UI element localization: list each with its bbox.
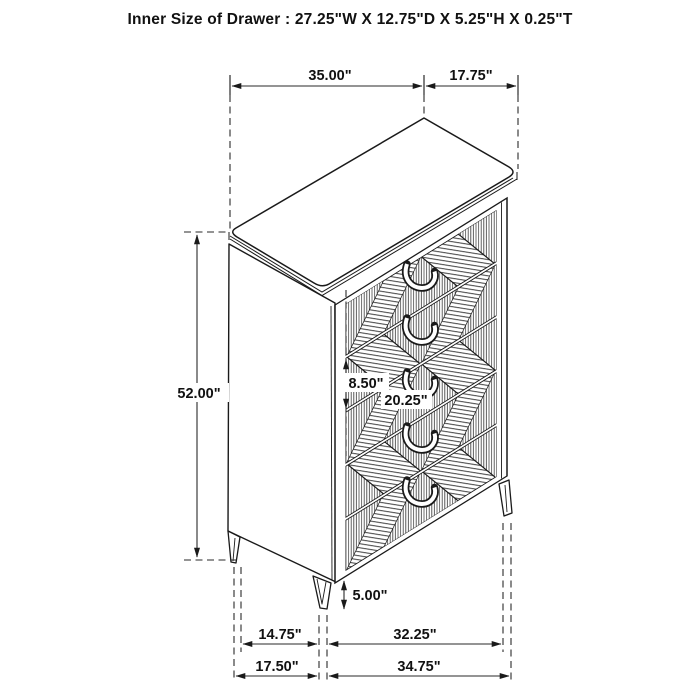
dim-base-width-label: 34.75"	[397, 659, 440, 675]
chest-side-panel	[228, 244, 336, 582]
dim-leg-span-width-label: 32.25"	[393, 627, 436, 643]
dim-drawer-width-label: 20.25"	[384, 393, 427, 409]
dim-overall-height: 52.00"	[170, 232, 236, 560]
chest-dimension-drawing: 35.00" 17.75" 52.00" 8.50" 20.25" 5.00"	[0, 0, 700, 700]
dim-top-width-label: 35.00"	[308, 68, 351, 84]
dim-base-depth-label: 17.50"	[255, 659, 298, 675]
dim-top-depth-label: 17.75"	[449, 68, 492, 84]
dimension-diagram-page: Inner Size of Drawer : 27.25"W X 12.75"D…	[0, 0, 700, 700]
dim-drawer-height-label: 8.50"	[348, 376, 383, 392]
dim-leg-span-depth-label: 14.75"	[258, 627, 301, 643]
dim-leg-height: 5.00"	[344, 581, 391, 609]
back-left-leg	[228, 531, 240, 563]
dim-overall-height-label: 52.00"	[177, 386, 220, 402]
dim-leg-height-label: 5.00"	[352, 588, 387, 604]
front-right-leg	[499, 480, 512, 516]
front-center-leg	[313, 576, 331, 609]
